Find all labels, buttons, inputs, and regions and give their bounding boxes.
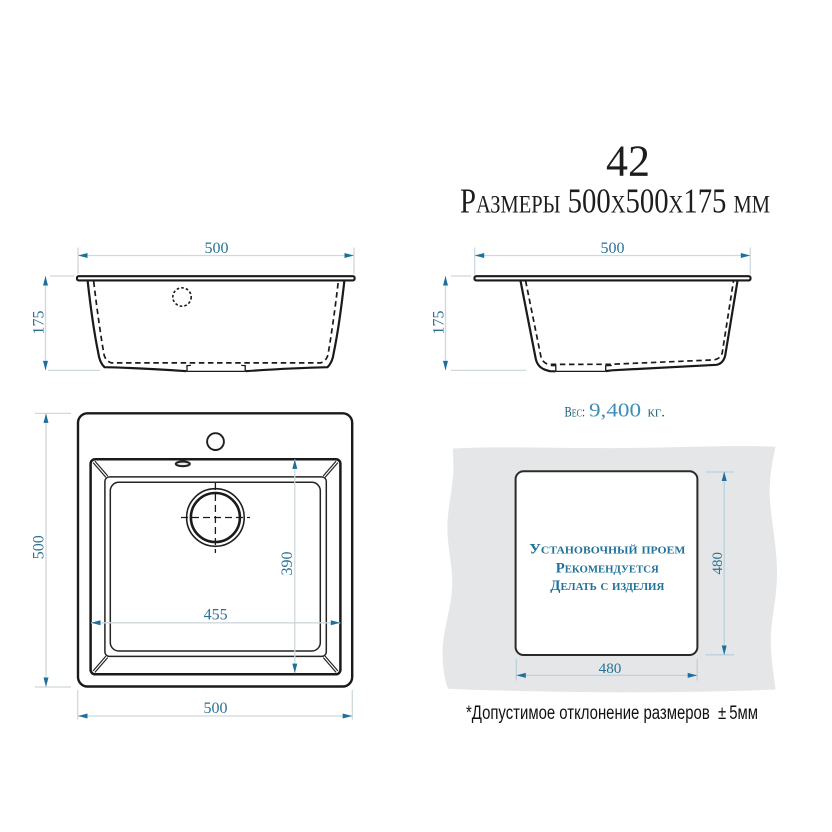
svg-text:175: 175 bbox=[31, 311, 48, 335]
svg-text:175: 175 bbox=[431, 311, 448, 335]
svg-text:9,400: 9,400 bbox=[589, 400, 641, 422]
svg-text:455: 455 bbox=[204, 607, 228, 624]
svg-text:Установочный проем: Установочный проем bbox=[529, 542, 686, 558]
svg-text:500: 500 bbox=[31, 535, 48, 559]
svg-text:480: 480 bbox=[599, 660, 622, 677]
svg-text:500: 500 bbox=[205, 240, 229, 257]
svg-text:480: 480 bbox=[710, 552, 726, 575]
svg-text:Делать с изделия: Делать с изделия bbox=[550, 578, 664, 594]
svg-text:500: 500 bbox=[204, 700, 228, 717]
svg-text:Размеры 500х500х175 мм: Размеры 500х500х175 мм bbox=[460, 182, 770, 221]
svg-text:*Допустимое отклонение размеро: *Допустимое отклонение размеров ± 5мм bbox=[466, 703, 758, 724]
svg-text:кг.: кг. bbox=[648, 405, 666, 421]
svg-text:390: 390 bbox=[279, 552, 296, 576]
svg-text:42: 42 bbox=[606, 137, 650, 186]
svg-text:Вес:: Вес: bbox=[565, 405, 586, 421]
svg-text:Рекомендуется: Рекомендуется bbox=[556, 561, 659, 577]
svg-text:500: 500 bbox=[601, 240, 625, 257]
